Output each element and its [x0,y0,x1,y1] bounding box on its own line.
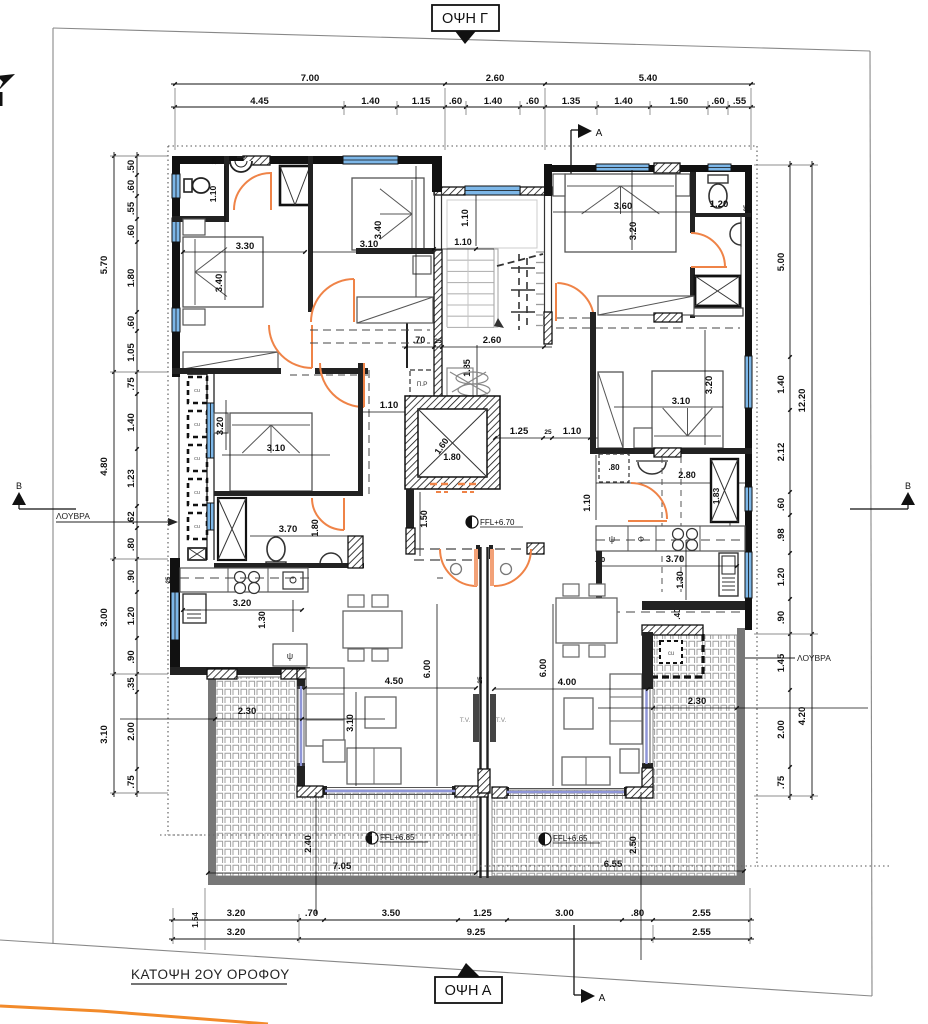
svg-text:3.10: 3.10 [267,443,286,454]
svg-text:.55: .55 [733,96,747,107]
svg-text:1.50: 1.50 [670,96,689,107]
svg-text:2.60: 2.60 [486,73,505,84]
svg-text:FFL+6.85: FFL+6.85 [380,833,415,842]
svg-text:.62: .62 [126,511,137,524]
svg-text:.75: .75 [776,775,787,789]
svg-text:.60: .60 [126,316,137,329]
svg-text:cu: cu [668,651,674,657]
svg-text:A: A [596,128,603,139]
svg-text:1.05: 1.05 [126,343,137,362]
svg-text:1.20: 1.20 [710,199,729,210]
svg-text:.75: .75 [126,377,137,391]
svg-text:1.10: 1.10 [563,426,582,437]
svg-text:.98: .98 [776,528,787,541]
svg-text:2.00: 2.00 [126,722,137,741]
svg-text:cu: cu [194,422,200,428]
svg-text:.90: .90 [126,650,137,663]
svg-text:3.30: 3.30 [236,241,255,252]
svg-text:.60: .60 [776,498,787,511]
svg-text:7.05: 7.05 [333,861,352,872]
svg-text:7.00: 7.00 [301,73,320,84]
svg-text:1.80: 1.80 [443,452,461,462]
svg-text:ΟΨΗ Α: ΟΨΗ Α [445,983,492,999]
svg-text:1.20: 1.20 [126,607,137,626]
svg-text:.60: .60 [449,96,462,107]
svg-text:ψ: ψ [287,651,293,661]
svg-text:4.20: 4.20 [797,707,808,726]
svg-text:3.40: 3.40 [373,221,384,240]
svg-text:cu: cu [194,388,200,394]
svg-text:.60: .60 [711,96,724,107]
svg-text:.60: .60 [126,180,137,193]
svg-text:4.50: 4.50 [385,676,404,687]
svg-text:4.80: 4.80 [99,457,110,476]
svg-text:.80: .80 [631,908,644,919]
svg-text:3.00: 3.00 [99,608,110,627]
svg-text:.80: .80 [608,463,620,472]
svg-text:3.10: 3.10 [345,714,355,732]
svg-text:1.40: 1.40 [614,96,633,107]
svg-text:A: A [599,993,606,1004]
svg-text:.90: .90 [776,611,787,624]
svg-text:25: 25 [477,676,484,684]
svg-text:25: 25 [434,338,442,345]
svg-text:ΛΟΥΒΡΑ: ΛΟΥΒΡΑ [797,653,831,663]
svg-text:ΛΟΥΒΡΑ: ΛΟΥΒΡΑ [56,511,90,521]
svg-text:3.70: 3.70 [279,524,298,535]
svg-text:3.50: 3.50 [382,908,401,919]
svg-text:ψ: ψ [609,534,615,544]
svg-text:4.00: 4.00 [558,677,577,688]
svg-text:.80: .80 [126,538,137,551]
svg-text:1.10: 1.10 [380,400,399,411]
svg-text:1.80: 1.80 [310,519,320,537]
svg-text:2.55: 2.55 [692,927,711,938]
svg-text:.75: .75 [126,775,137,789]
svg-text:3.20: 3.20 [215,417,226,436]
svg-text:T.V.: T.V. [460,717,471,724]
svg-text:1.80: 1.80 [126,269,137,288]
svg-text:25: 25 [166,576,172,583]
svg-text:25: 25 [744,204,750,211]
svg-text:3.00: 3.00 [555,908,574,919]
svg-text:cu: cu [194,524,200,530]
svg-text:4.45: 4.45 [250,96,269,107]
svg-text:25: 25 [544,429,552,436]
svg-text:.50: .50 [126,160,137,173]
svg-text:.90: .90 [126,570,137,583]
svg-text:6.55: 6.55 [604,859,623,870]
svg-text:1.10: 1.10 [454,237,472,247]
svg-text:12.20: 12.20 [797,389,808,413]
svg-text:1.25: 1.25 [510,426,529,437]
svg-text:1.40: 1.40 [126,413,137,432]
svg-text:3.20: 3.20 [227,927,246,938]
svg-text:1.35: 1.35 [562,96,581,107]
svg-text:3.20: 3.20 [628,222,639,241]
svg-text:1.54: 1.54 [191,912,200,928]
svg-text:2.00: 2.00 [776,720,787,739]
svg-text:B: B [16,481,22,491]
svg-text:3.10: 3.10 [99,725,110,744]
svg-text:3.40: 3.40 [214,274,225,293]
svg-text:2.55: 2.55 [692,908,711,919]
svg-text:1.23: 1.23 [126,469,137,488]
svg-text:3.20: 3.20 [233,598,252,609]
svg-text:1.50: 1.50 [419,510,429,528]
svg-text:5.40: 5.40 [639,73,658,84]
svg-text:1.10: 1.10 [208,185,218,202]
svg-text:T.V.: T.V. [496,717,507,724]
svg-text:1.30: 1.30 [257,611,267,629]
svg-text:.55: .55 [126,201,137,215]
svg-text:Π.P: Π.P [417,381,428,388]
svg-text:3.60: 3.60 [614,201,633,212]
svg-text:1.20: 1.20 [776,568,787,587]
svg-text:25: 25 [212,157,218,164]
svg-text:1.40: 1.40 [361,96,380,107]
svg-text:9.25: 9.25 [467,927,486,938]
svg-text:1.83: 1.83 [711,487,721,504]
svg-text:3.20: 3.20 [227,908,246,919]
svg-text:1.25: 1.25 [473,908,492,919]
svg-text:3.10: 3.10 [672,396,691,407]
svg-text:B: B [905,481,911,491]
svg-text:cu: cu [194,456,200,462]
svg-text:2.12: 2.12 [776,443,787,462]
svg-text:1.40: 1.40 [484,96,503,107]
svg-text:1.10: 1.10 [460,209,470,227]
svg-text:FFL+6.70: FFL+6.70 [480,518,515,527]
svg-text:6.00: 6.00 [422,660,433,679]
svg-text:2.50: 2.50 [628,836,638,854]
svg-text:2.40: 2.40 [303,835,313,853]
svg-text:.70: .70 [413,335,426,345]
svg-text:1.10: 1.10 [582,494,592,512]
svg-text:6.00: 6.00 [538,659,549,678]
svg-text:.35: .35 [126,677,137,691]
svg-text:2.30: 2.30 [238,706,257,717]
svg-text:2.30: 2.30 [688,696,707,707]
svg-text:ΟΨΗ Γ: ΟΨΗ Γ [442,11,488,27]
svg-text:2.60: 2.60 [483,335,502,346]
svg-text:1.40: 1.40 [776,375,787,394]
svg-text:3.20: 3.20 [704,376,715,395]
svg-text:ΚΑΤΟΨΗ 2ΟΥ ΟΡΟΦΟΥ: ΚΑΤΟΨΗ 2ΟΥ ΟΡΟΦΟΥ [131,967,290,982]
svg-text:FFL+6.65: FFL+6.65 [553,834,588,843]
svg-text:5.00: 5.00 [776,253,787,272]
svg-text:1.45: 1.45 [776,653,787,672]
svg-text:1.15: 1.15 [412,96,431,107]
svg-text:5.70: 5.70 [99,256,110,275]
svg-text:cu: cu [194,490,200,496]
svg-text:.60: .60 [526,96,539,107]
svg-text:.60: .60 [126,225,137,238]
svg-text:1.30: 1.30 [675,571,685,589]
svg-text:3.70: 3.70 [666,554,685,565]
